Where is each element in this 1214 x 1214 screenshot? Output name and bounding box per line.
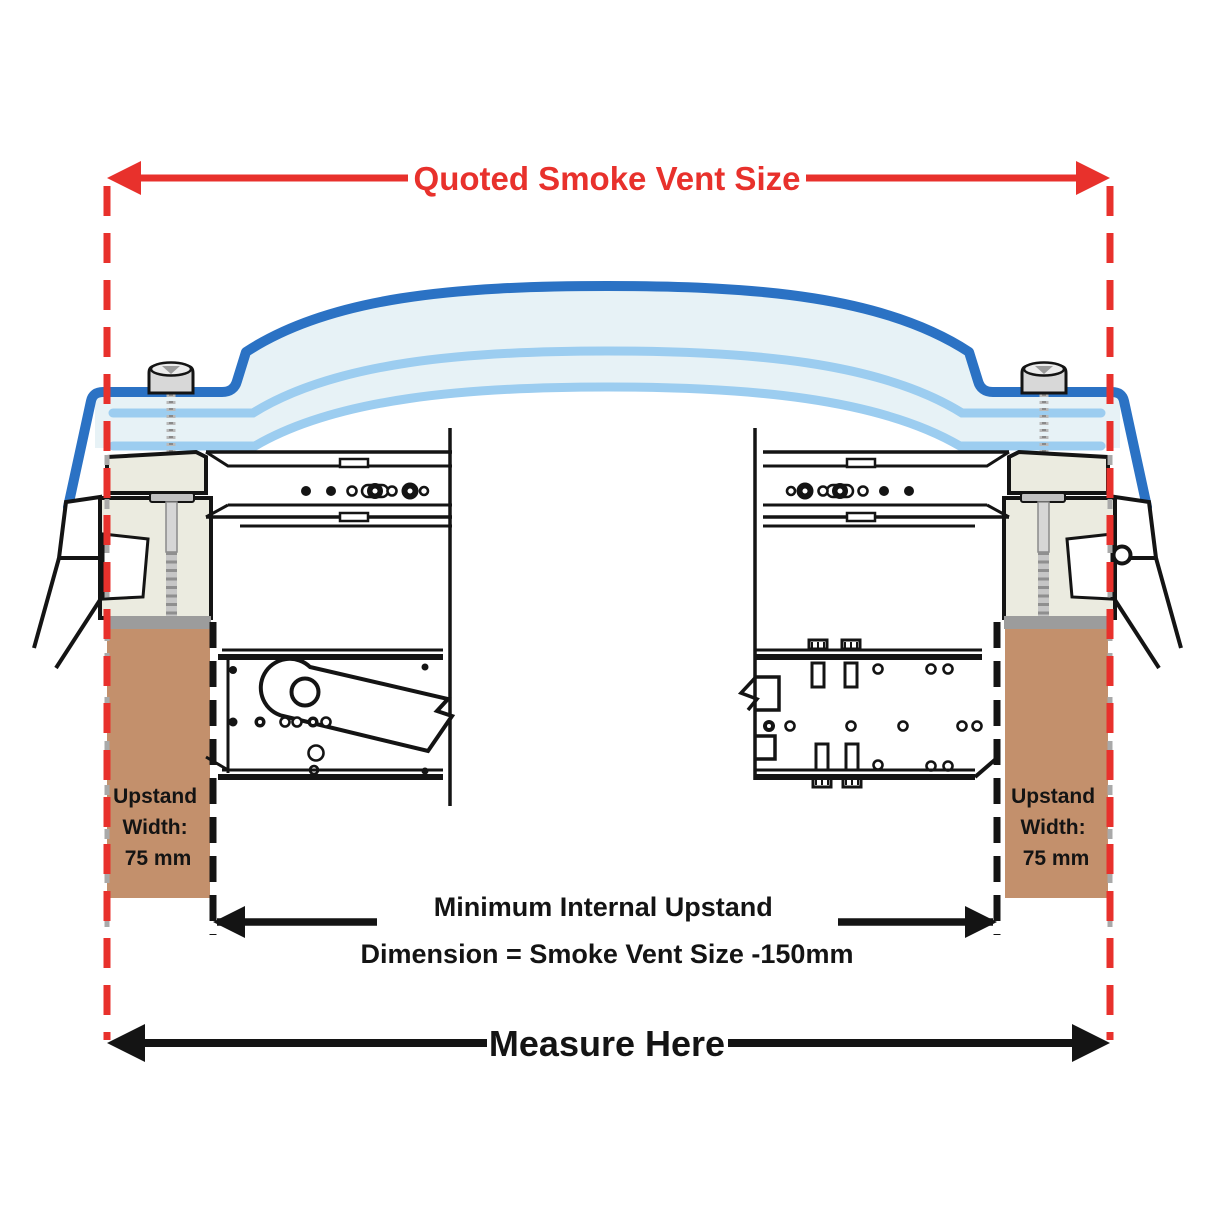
t-bolt [843, 744, 861, 787]
dome-glazing-fill [95, 286, 1120, 448]
dome-glazing [68, 286, 1147, 507]
vent-mechanism-right [741, 640, 997, 787]
smoke-vent-cross-section-svg: Upstand Width: 75 mm Upstand Width: 75 m… [0, 0, 1214, 1214]
t-bolt [813, 744, 831, 787]
pivot-arm [261, 659, 452, 751]
upstand-width-label-left: Upstand Width: 75 mm [113, 785, 203, 870]
arrowhead-right [1072, 1024, 1110, 1062]
arrowhead-left [213, 906, 245, 938]
vent-mechanism-left [206, 650, 452, 777]
quoted-size-label: Quoted Smoke Vent Size [414, 160, 801, 197]
arrowhead-left [107, 161, 141, 195]
upstand-width-label-right: Upstand Width: 75 mm [1011, 785, 1101, 870]
arrowhead-right [965, 906, 997, 938]
hinge-pin-right [1114, 547, 1131, 564]
smoke-vent-diagram: Upstand Width: 75 mm Upstand Width: 75 m… [0, 0, 1214, 1214]
measure-here-label: Measure Here [489, 1023, 725, 1064]
arrowhead-right [1076, 161, 1110, 195]
arrowhead-left [107, 1024, 145, 1062]
t-bolt [809, 640, 827, 687]
t-bolt [842, 640, 860, 687]
measure-here-dimension: Measure Here [107, 1023, 1110, 1064]
internal-dimension-text: Minimum Internal Upstand Dimension = Smo… [361, 892, 854, 969]
